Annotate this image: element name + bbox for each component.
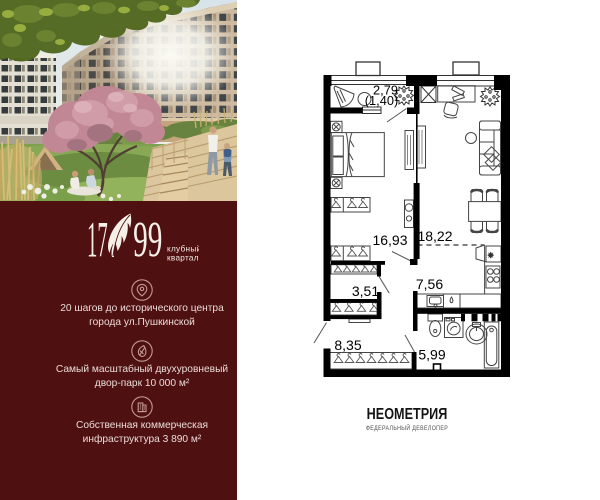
svg-text:8,35: 8,35: [334, 337, 361, 353]
svg-text:3,51: 3,51: [352, 283, 379, 299]
svg-text:5,99: 5,99: [418, 347, 445, 363]
svg-text:16,93: 16,93: [372, 232, 407, 248]
svg-text:18,22: 18,22: [417, 228, 452, 244]
svg-text:7,56: 7,56: [416, 276, 443, 292]
svg-text:(1,40): (1,40): [365, 93, 398, 108]
